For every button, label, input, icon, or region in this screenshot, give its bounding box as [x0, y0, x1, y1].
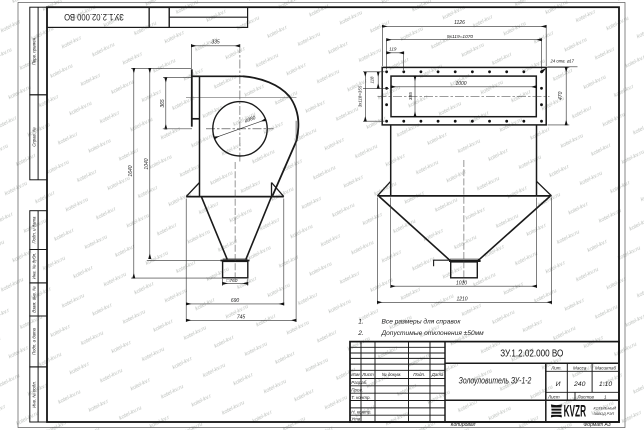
svg-text:2.: 2.	[357, 330, 364, 337]
svg-text:335: 335	[211, 40, 220, 46]
svg-text:Все размеры для справок: Все размеры для справок	[382, 317, 462, 325]
svg-text:Т. контр.: Т. контр.	[351, 395, 370, 400]
svg-text:Подп. и дата: Подп. и дата	[31, 216, 36, 244]
svg-text:1.: 1.	[358, 318, 364, 325]
svg-text:Утв.: Утв.	[351, 417, 361, 422]
svg-text:3x118=355: 3x118=355	[357, 85, 362, 107]
svg-text:Лист: Лист	[361, 372, 374, 377]
svg-text:И: И	[556, 381, 561, 388]
svg-text:690: 690	[231, 298, 240, 304]
svg-text:КОТЕЛЬНЫЙ: КОТЕЛЬНЫЙ	[594, 407, 617, 411]
svg-text:Подп.: Подп.	[413, 372, 425, 377]
svg-text:9x119=1070: 9x119=1070	[447, 34, 474, 40]
svg-text:Формат А3: Формат А3	[583, 422, 611, 428]
svg-text:Копировал: Копировал	[451, 422, 476, 428]
svg-text:Масштаб: Масштаб	[595, 365, 616, 370]
svg-text:470: 470	[558, 91, 564, 100]
svg-text:Пров.: Пров.	[351, 388, 363, 393]
svg-text:365: 365	[160, 99, 166, 108]
svg-text:240: 240	[573, 381, 586, 388]
svg-text:Лит.: Лит.	[550, 365, 562, 370]
svg-text:ЗУ.1.2.02.000 ВО: ЗУ.1.2.02.000 ВО	[64, 12, 124, 23]
svg-text:1040: 1040	[144, 158, 150, 169]
svg-text:385: 385	[408, 92, 414, 100]
svg-text:1210: 1210	[456, 297, 467, 303]
svg-text:Изм: Изм	[351, 372, 359, 377]
svg-text:Инв. № дубл.: Инв. № дубл.	[31, 253, 36, 279]
svg-text:Справ. №: Справ. №	[31, 127, 36, 147]
svg-text:№ докум.: № докум.	[382, 372, 402, 377]
svg-text:1126: 1126	[454, 20, 465, 26]
svg-text:Листов: Листов	[577, 394, 595, 399]
svg-text:Лист: Лист	[547, 394, 560, 399]
svg-text:1640: 1640	[128, 165, 134, 176]
svg-text:Взам. инв. №: Взам. инв. №	[31, 286, 36, 313]
svg-text:Дата: Дата	[431, 372, 444, 377]
svg-text:Подп. и дата: Подп. и дата	[31, 327, 36, 355]
svg-text:ЗУ.1.2.02.000 ВО: ЗУ.1.2.02.000 ВО	[500, 348, 563, 359]
svg-text:Масса: Масса	[573, 365, 587, 370]
svg-text:Золоуловитель ЗУ-1-2: Золоуловитель ЗУ-1-2	[459, 376, 532, 386]
svg-text:Н. контр.: Н. контр.	[351, 410, 371, 415]
svg-text:Разраб.: Разраб.	[351, 380, 367, 385]
svg-text:118: 118	[370, 76, 375, 84]
svg-text:1010: 1010	[456, 280, 467, 286]
svg-text:ЗАВОД РЭП: ЗАВОД РЭП	[594, 412, 615, 416]
svg-text:745: 745	[237, 315, 246, 321]
svg-text:119: 119	[389, 47, 397, 52]
svg-text:□760: □760	[227, 278, 238, 284]
svg-text:Инв. № подл.: Инв. № подл.	[31, 381, 36, 408]
svg-text:KVZR: KVZR	[564, 401, 587, 420]
svg-text:24 отв. ⌀17: 24 отв. ⌀17	[550, 58, 575, 63]
svg-text:1000: 1000	[455, 81, 466, 87]
svg-text:1:10: 1:10	[599, 381, 612, 388]
svg-text:Перв. примен.: Перв. примен.	[31, 37, 36, 66]
svg-text:Допустимые отклонения ±50мм: Допустимые отклонения ±50мм	[381, 330, 485, 337]
